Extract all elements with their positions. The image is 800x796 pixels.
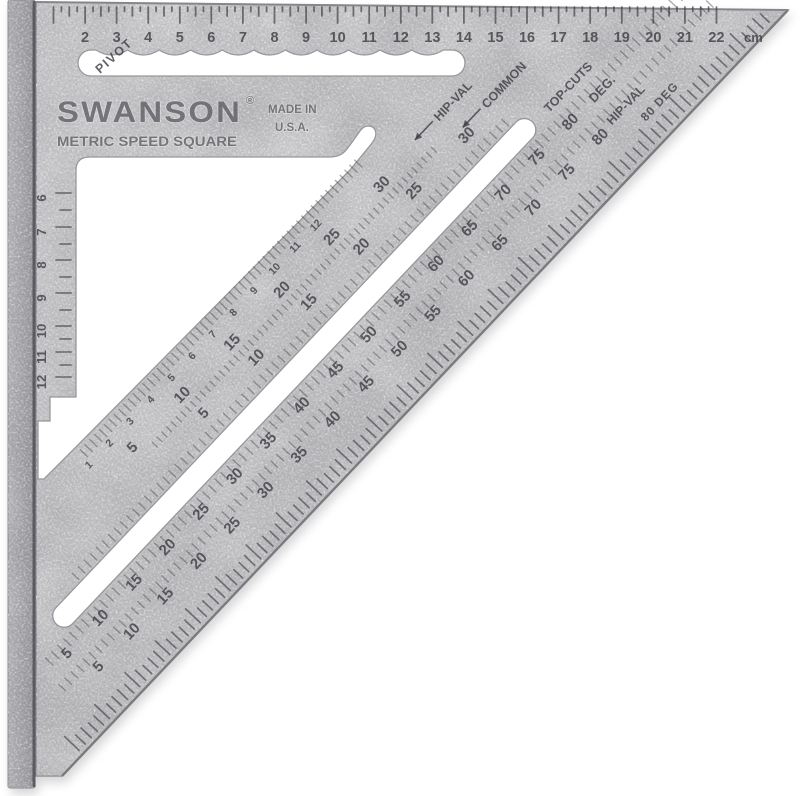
ruler-number: 14 [456, 30, 472, 46]
ruler-number: 8 [34, 261, 49, 268]
ruler-number: 21 [677, 30, 693, 46]
ruler-number: 11 [34, 350, 49, 364]
ruler-number: 20 [645, 30, 661, 46]
ruler-number: 9 [34, 294, 49, 301]
ruler-number: 16 [519, 30, 535, 46]
ruler-number: 13 [424, 30, 440, 46]
ruler-number: 10 [34, 324, 49, 338]
ruler-number: 22 [708, 30, 724, 46]
ruler-number: 7 [34, 228, 49, 235]
ruler-number: 9 [302, 30, 310, 46]
registered-mark: ® [246, 95, 254, 107]
ruler-number: 12 [393, 30, 409, 46]
made-in-line1: MADE IN [268, 104, 317, 116]
ruler-number: 19 [614, 30, 630, 46]
ruler-number: 10 [330, 30, 346, 46]
ruler-number: 4 [144, 30, 152, 46]
ruler-number: 5 [176, 30, 184, 46]
ruler-number: 18 [582, 30, 598, 46]
ruler-number: 8 [270, 30, 278, 46]
speed-square-product-photo: 2345678910111213141516171819202122 cm PI… [0, 0, 800, 796]
ruler-number: 11 [362, 30, 377, 46]
made-in-line2: U.S.A. [275, 122, 309, 134]
ruler-number: 2 [81, 30, 89, 46]
brand-logo: SWANSON [57, 96, 242, 129]
ruler-number: 6 [34, 194, 49, 201]
ruler-number: 7 [239, 30, 247, 46]
ruler-number: 17 [551, 30, 567, 46]
ruler-number: 12 [34, 375, 49, 389]
speed-square-svg: 2345678910111213141516171819202122 cm PI… [0, 0, 800, 796]
ruler-number: 6 [207, 30, 215, 46]
ruler-number: 15 [487, 30, 503, 46]
product-name: METRIC SPEED SQUARE [57, 133, 237, 149]
